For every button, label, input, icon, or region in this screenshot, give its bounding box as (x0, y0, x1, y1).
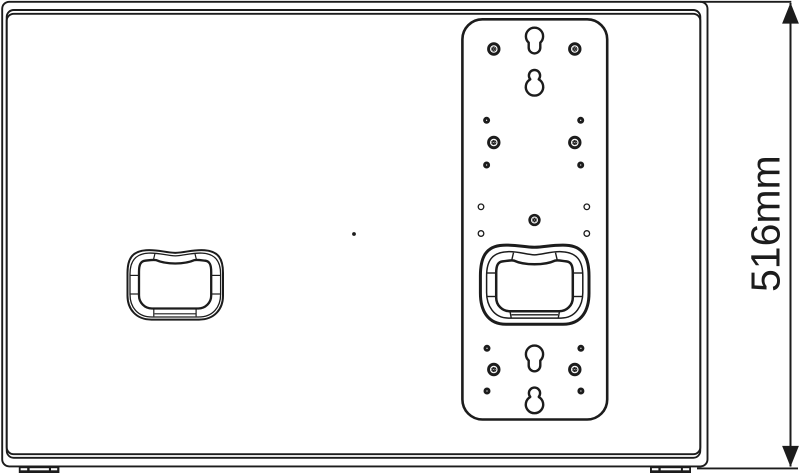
svg-text:516mm: 516mm (743, 155, 789, 292)
